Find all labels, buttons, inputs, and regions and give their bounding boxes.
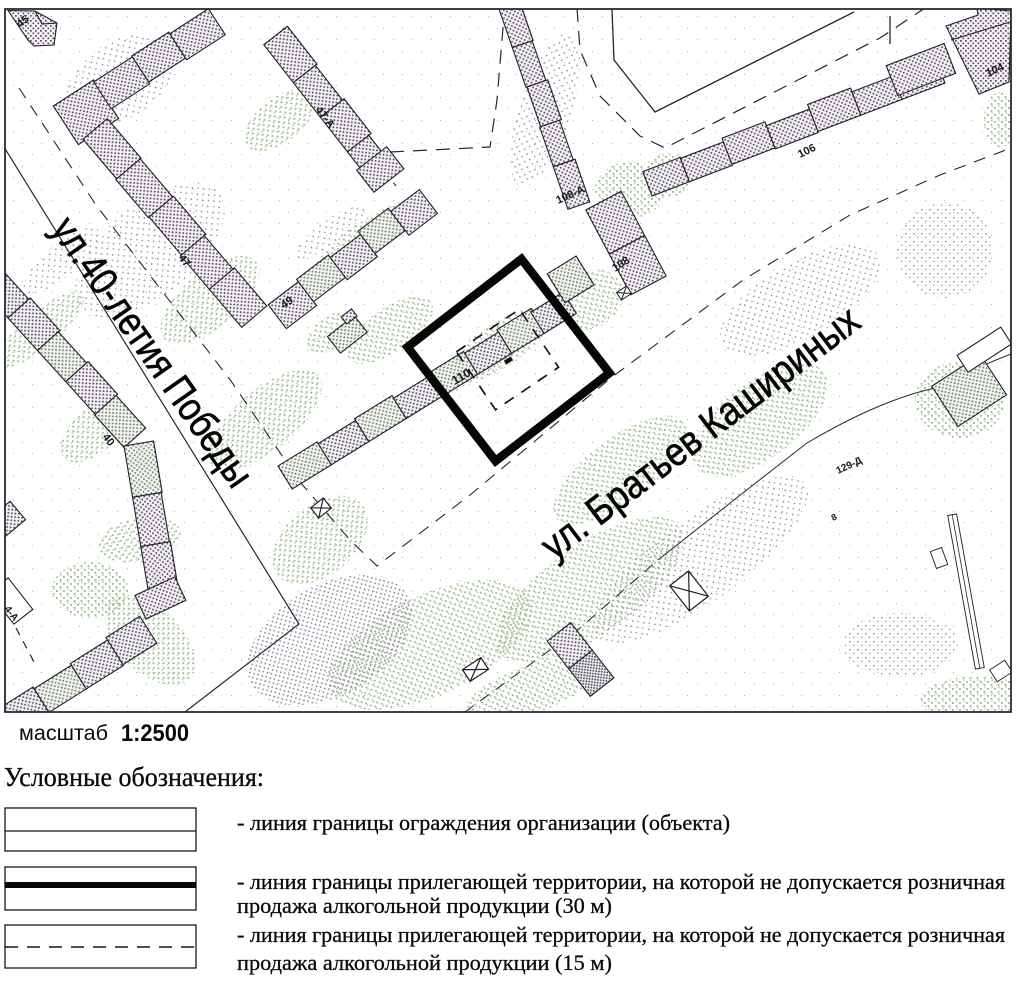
svg-text:масштаб: масштаб: [19, 722, 108, 745]
svg-text:Условные обозначения:: Условные обозначения:: [4, 762, 264, 792]
svg-text:1:2500: 1:2500: [121, 720, 189, 747]
svg-text:продажа алкогольной продукции: продажа алкогольной продукции (15 м): [237, 950, 612, 975]
svg-text:продажа алкогольной продукции: продажа алкогольной продукции (30 м): [237, 893, 612, 918]
svg-text:- линия границы ограждения орг: - линия границы ограждения организации (…: [237, 810, 730, 835]
svg-text:- линия границы прилегающей те: - линия границы прилегающей территории, …: [237, 922, 1005, 947]
svg-text:- линия границы прилегающей те: - линия границы прилегающей территории, …: [237, 869, 1005, 894]
